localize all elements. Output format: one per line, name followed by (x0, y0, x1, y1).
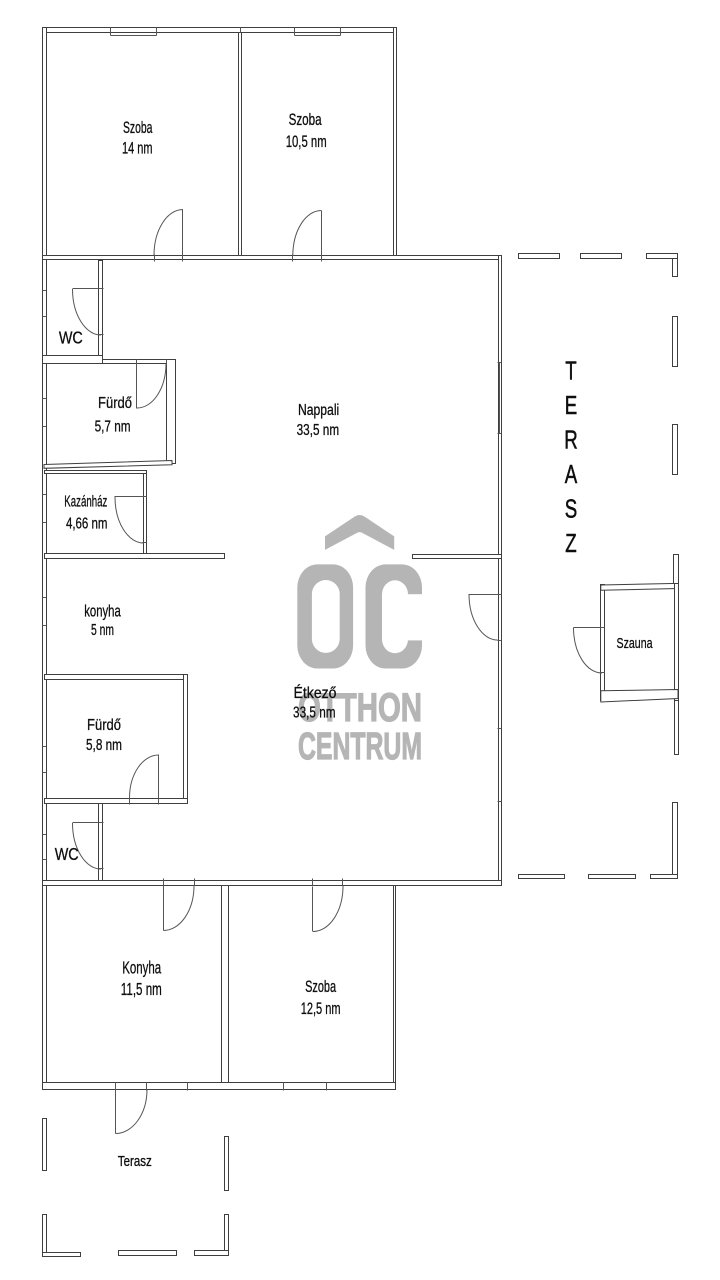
svg-text:Z: Z (565, 528, 577, 558)
svg-text:Szoba: Szoba (289, 110, 322, 129)
svg-text:14 nm: 14 nm (122, 139, 153, 158)
svg-text:Szauna: Szauna (617, 635, 653, 652)
svg-text:33,5 nm: 33,5 nm (293, 704, 336, 721)
svg-text:Fürdő: Fürdő (87, 717, 121, 734)
svg-text:R: R (564, 424, 578, 454)
svg-text:4,66 nm: 4,66 nm (66, 515, 108, 532)
svg-text:12,5 nm: 12,5 nm (301, 1000, 341, 1018)
svg-text:10,5 nm: 10,5 nm (286, 132, 327, 151)
svg-text:33,5 nm: 33,5 nm (297, 422, 340, 439)
svg-text:Konyha: Konyha (122, 957, 161, 977)
svg-text:Kazánház: Kazánház (64, 494, 107, 511)
svg-text:E: E (565, 390, 577, 420)
svg-text:5 nm: 5 nm (91, 622, 114, 639)
svg-text:Étkező: Étkező (294, 683, 337, 702)
svg-text:5,8 nm: 5,8 nm (86, 737, 122, 754)
svg-text:S: S (565, 493, 577, 523)
svg-text:Terasz: Terasz (118, 1153, 152, 1170)
svg-text:Szoba: Szoba (305, 978, 337, 996)
svg-text:Fürdő: Fürdő (98, 395, 132, 412)
svg-text:CENTRUM: CENTRUM (298, 726, 422, 768)
svg-text:A: A (565, 459, 578, 489)
svg-text:5,7 nm: 5,7 nm (95, 419, 131, 436)
svg-text:WC: WC (59, 328, 83, 348)
svg-text:T: T (565, 355, 577, 385)
svg-text:Szoba: Szoba (123, 118, 153, 137)
svg-text:Nappali: Nappali (298, 402, 339, 419)
svg-text:11,5 nm: 11,5 nm (121, 979, 162, 999)
svg-text:WC: WC (55, 845, 79, 865)
svg-text:konyha: konyha (84, 603, 121, 621)
